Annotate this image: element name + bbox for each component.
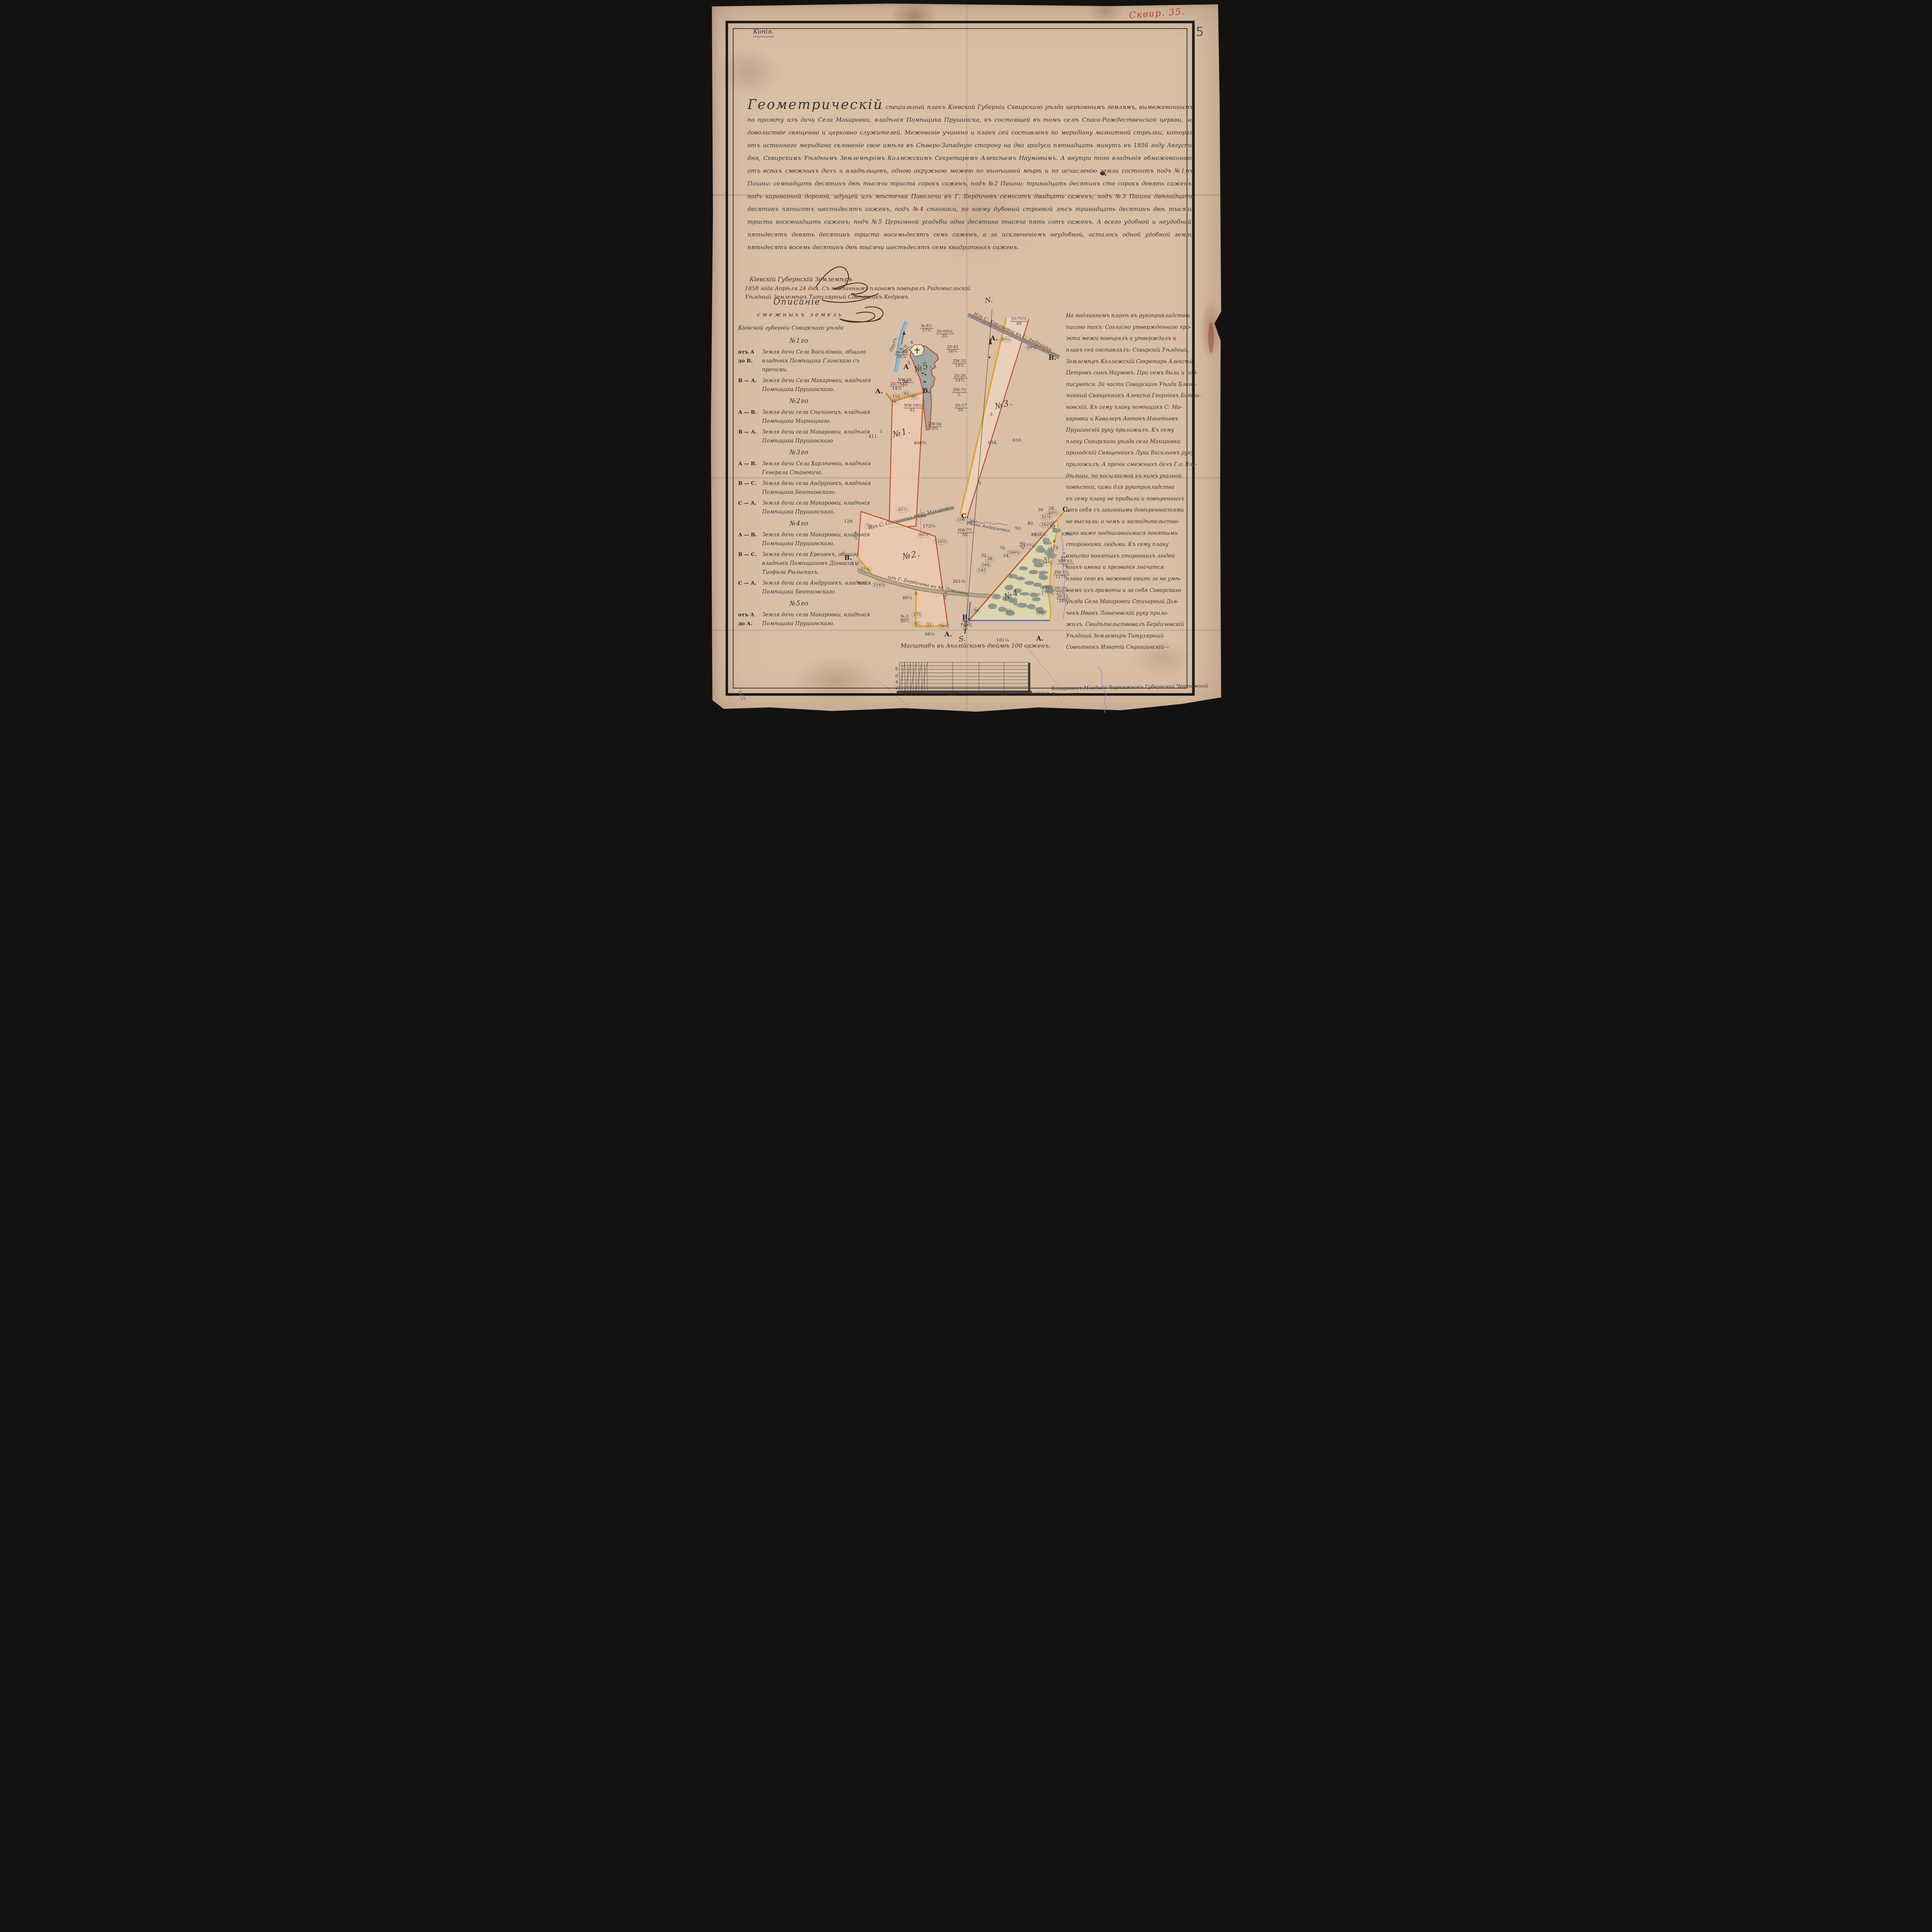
corner-letter: В. xyxy=(844,554,852,562)
bearing-label: №:83.17⅔ xyxy=(920,324,933,333)
measure-point: 156 xyxy=(890,394,902,400)
measure-point: 100 xyxy=(955,517,967,523)
bearing-label: NW:18½61. xyxy=(903,404,923,413)
scale-tick: 300 xyxy=(975,692,983,697)
measure-label: 76. xyxy=(999,545,1006,551)
corner-letter: А xyxy=(903,363,909,371)
measure-label: 54. xyxy=(1003,553,1010,558)
bearing-label: ZW:949¾ xyxy=(927,422,942,431)
measure-point: 51¼ xyxy=(1039,514,1053,520)
compass-label: N. xyxy=(985,296,993,305)
measure-point: 80¼ xyxy=(999,337,1012,343)
bearing-label: 20:12.24⅔ xyxy=(1056,595,1071,604)
corner-letter: С. xyxy=(1063,506,1070,514)
measure-label: 411. xyxy=(869,434,879,439)
scale-unit: саженъ. xyxy=(1030,690,1051,696)
measure-label: 40. xyxy=(1027,520,1034,526)
measure-label: 468⅔ xyxy=(913,440,926,446)
measure-point: 78½ xyxy=(937,623,951,629)
corner-letter: В. xyxy=(1048,354,1056,362)
bearing-label: ½34 xyxy=(1050,521,1056,530)
road-label: Изъ С: Спичинецъ въ С: Макаровку. xyxy=(868,503,956,530)
scale-tick: 200 xyxy=(949,692,957,697)
measure-point: 145 xyxy=(976,567,988,573)
bearing-label: ZW:1¾117½ xyxy=(1053,571,1070,580)
measure-point: 69¼ xyxy=(917,532,930,538)
measure-label: 172½. xyxy=(923,523,937,529)
measure-label: 3. xyxy=(978,480,982,485)
bearing-label: 20:60¼.35. xyxy=(936,329,954,338)
measure-point: 174 xyxy=(1048,545,1060,551)
measure-label: 650. xyxy=(1012,437,1022,443)
scale-tick: 8 xyxy=(904,692,907,697)
measure-point: 110¾ xyxy=(933,539,948,545)
plot-number: №4. xyxy=(1003,587,1023,602)
measure-point: 177½ xyxy=(1022,543,1037,549)
measure-point: 85 xyxy=(909,394,918,400)
measure-label: 3 xyxy=(990,412,992,417)
pencil-note: 229. xyxy=(736,688,747,701)
measure-label: 93½. xyxy=(857,580,869,586)
bearing-label: 20:75½49 xyxy=(1010,317,1027,326)
scale-tick: 2 xyxy=(895,685,898,690)
bearing-label: №:330½ xyxy=(900,615,909,624)
bearing-label: №:3110⅔ xyxy=(960,619,972,628)
bearing-label: NW:77.50. xyxy=(957,528,974,537)
plot-number: №1. xyxy=(892,426,912,440)
bearing-label: NW:83.16. xyxy=(1058,559,1074,568)
measure-label: 654. xyxy=(988,440,998,445)
measure-label: 129. xyxy=(844,519,854,524)
bearing-label: ½3. xyxy=(943,592,948,600)
measure-label: 102 xyxy=(918,513,926,518)
scale-tick: 2 xyxy=(921,692,923,697)
measure-point: 114¾ xyxy=(871,582,887,588)
measure-point: 57¼ xyxy=(859,566,872,573)
measure-point: 38 xyxy=(985,556,994,562)
scale-tick: 6 xyxy=(910,692,912,697)
measure-label: 50. xyxy=(1015,526,1022,531)
corner-letter: А. xyxy=(1036,635,1044,643)
measure-label: 261½. xyxy=(952,578,967,584)
map-annotations: №:83.17⅔20:60¼.35.№:9.17½.20:4116⅔ZW:521… xyxy=(708,0,1224,716)
scale-title: Масштабъ въ Англійскомъ дюймѣ 100 саженъ… xyxy=(901,642,1051,649)
plot-number: №3. xyxy=(994,398,1014,412)
measure-point: 175 xyxy=(912,612,923,618)
scale-tick: 400 xyxy=(1000,692,1008,697)
plot-number: №2. xyxy=(901,549,922,562)
scale-tick: 4 xyxy=(895,679,898,684)
bearing-label: 20:4116⅔ xyxy=(946,345,959,354)
measure-label: 4 xyxy=(910,340,913,345)
scanned-survey-plan: Сквир. 35. 5 Копія. Геометрическій спеці… xyxy=(708,0,1224,716)
measure-label: 36 xyxy=(1038,507,1044,512)
measure-label: 85⅔. xyxy=(1061,531,1072,537)
measure-point: 32 xyxy=(925,622,934,628)
measure-point: 90 xyxy=(972,607,981,614)
scale-tick: 8 xyxy=(895,667,898,672)
bearing-label: ZW:735. xyxy=(952,388,967,397)
measure-point: 75 xyxy=(1036,610,1045,616)
measure-label: 89½ xyxy=(903,595,913,600)
measure-point: 65½ xyxy=(896,507,909,513)
bearing-label: 20:1750. xyxy=(954,404,968,413)
bearing-label: ZW:5213⅓ xyxy=(952,359,967,368)
corner-letter: А. xyxy=(875,388,883,395)
scale-tick: 6 xyxy=(895,673,898,678)
measure-label: 2 xyxy=(879,428,882,434)
scale-tick: 4 xyxy=(915,692,918,697)
road-label: изъ Г. Бердичева въ М. Поволочь. xyxy=(888,574,971,597)
measure-label: 94. xyxy=(903,379,910,384)
measure-point: 168¼ xyxy=(1032,532,1048,538)
plot-number: №5. xyxy=(913,360,934,375)
measure-point: 170¼ xyxy=(1039,590,1055,596)
measure-point: 99½ xyxy=(1025,345,1038,351)
measure-label: 98⅓ xyxy=(925,631,935,637)
measure-point: 84¾ xyxy=(1041,560,1054,566)
bearing-label: 20:26.24½. xyxy=(953,374,968,383)
measure-point: 117 xyxy=(850,561,862,567)
measure-point: 95. xyxy=(912,621,923,627)
measure-point: 87 xyxy=(1004,609,1013,615)
corner-letter: А. xyxy=(990,335,998,342)
bearing-label: zw:8424¼ xyxy=(895,350,908,359)
corner-letter: А. xyxy=(944,631,952,638)
measure-label: 6 xyxy=(1053,538,1056,544)
measure-label: 8 xyxy=(915,591,917,596)
corner-letter: В. xyxy=(922,387,930,395)
measure-point: 76 xyxy=(889,399,898,405)
bearing-label: 5¾ xyxy=(854,531,858,540)
bearing-label: 20:74.14⅓ xyxy=(889,382,904,391)
